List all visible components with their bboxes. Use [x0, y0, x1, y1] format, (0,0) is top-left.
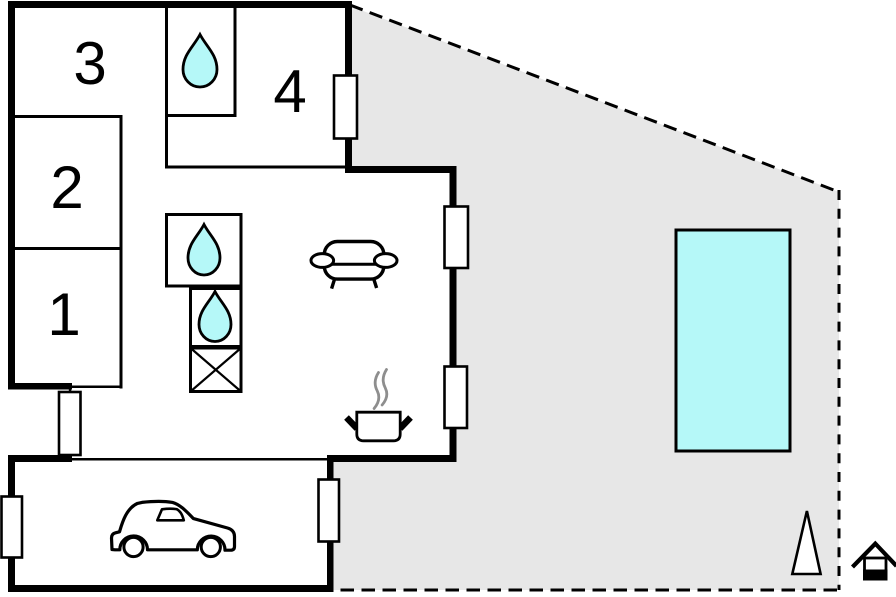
svg-text:1: 1: [47, 281, 80, 348]
svg-text:2: 2: [50, 154, 83, 221]
svg-text:4: 4: [273, 58, 306, 125]
svg-text:3: 3: [73, 30, 106, 97]
